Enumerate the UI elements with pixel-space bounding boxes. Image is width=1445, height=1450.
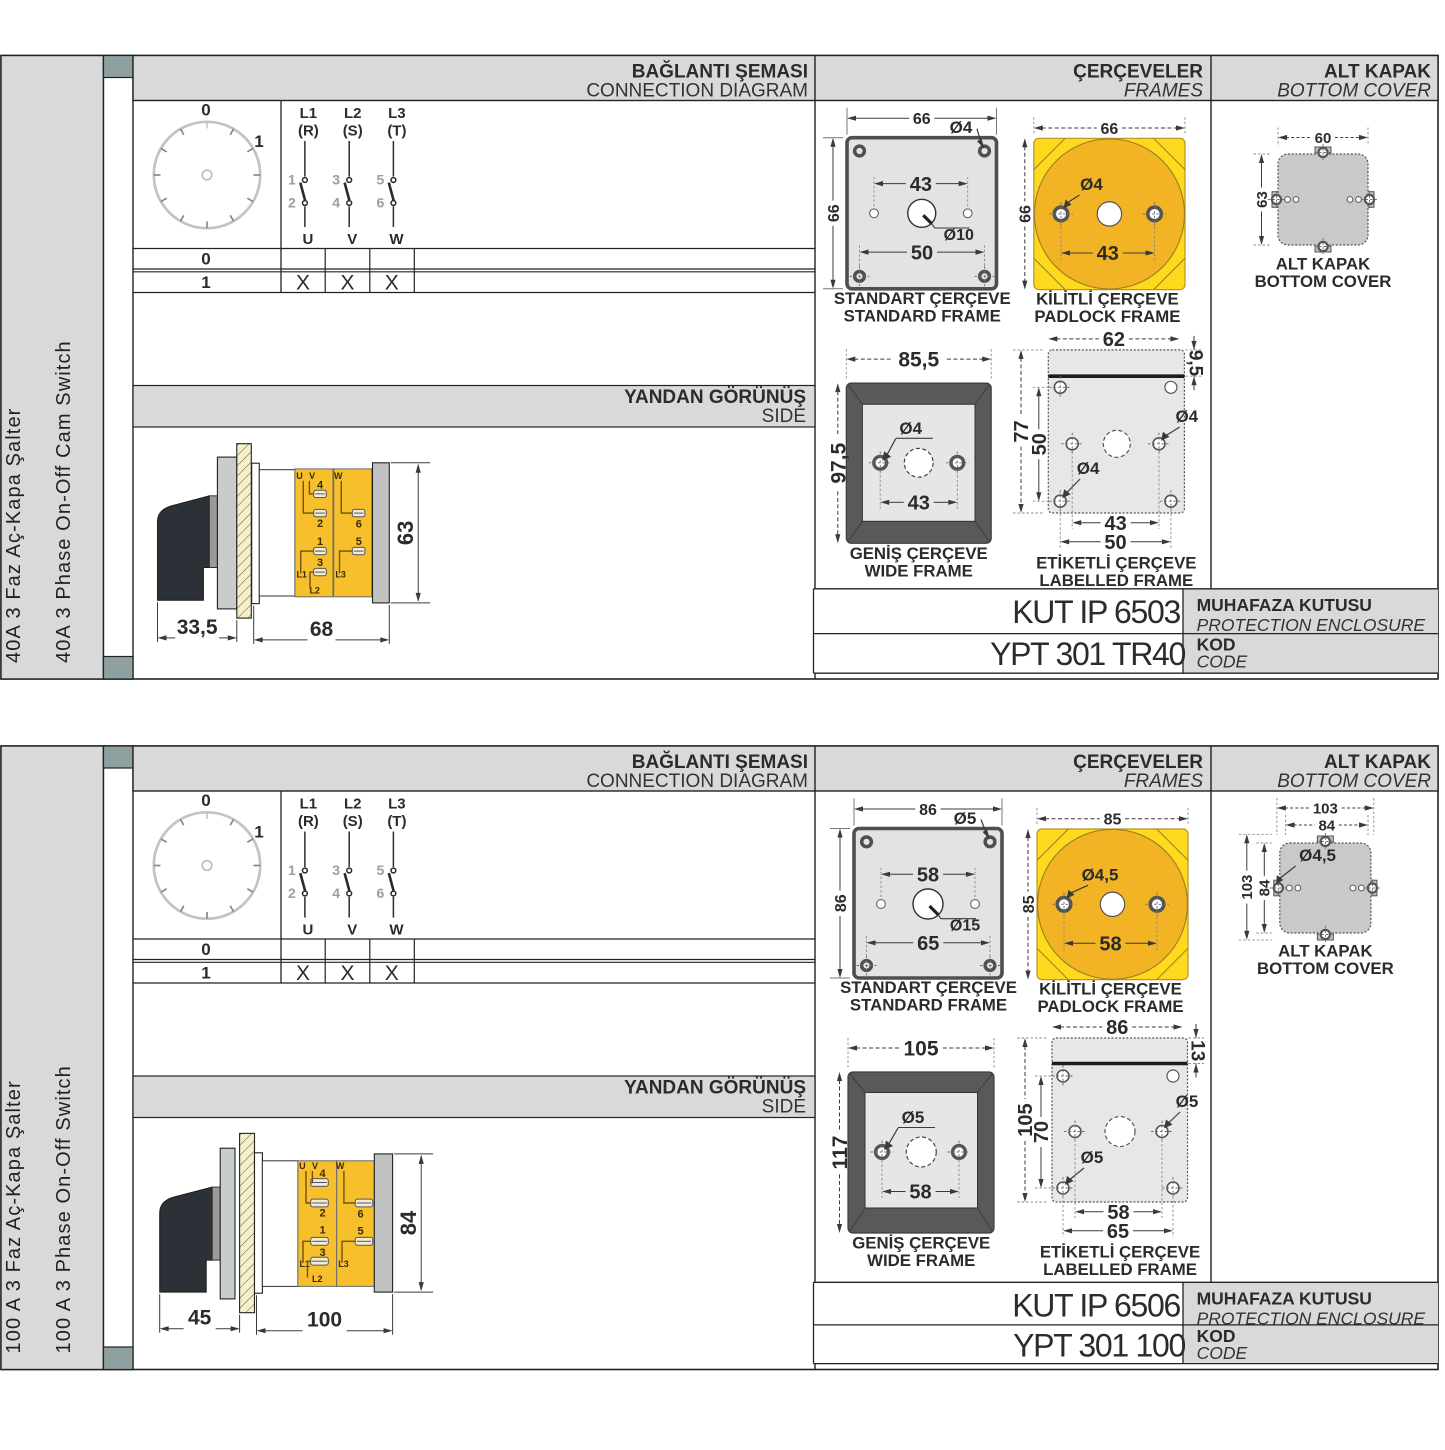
svg-text:85: 85: [1021, 895, 1038, 913]
svg-text:BAĞLANTI ŞEMASI: BAĞLANTI ŞEMASI: [632, 61, 808, 83]
svg-text:Ø5: Ø5: [1081, 1148, 1104, 1167]
svg-text:84: 84: [1318, 817, 1335, 834]
svg-text:L2: L2: [344, 105, 362, 122]
svg-text:X: X: [385, 272, 399, 295]
svg-text:X: X: [385, 962, 399, 985]
svg-text:L2: L2: [312, 1274, 323, 1284]
svg-text:L3: L3: [335, 570, 346, 580]
svg-text:X: X: [296, 272, 310, 295]
svg-text:SIDE: SIDE: [762, 406, 806, 427]
svg-text:KİLİTLİ ÇERÇEVE: KİLİTLİ ÇERÇEVE: [1039, 980, 1182, 999]
svg-text:X: X: [340, 272, 354, 295]
svg-text:WIDE FRAME: WIDE FRAME: [867, 1251, 975, 1270]
svg-text:KUT IP 6503: KUT IP 6503: [1012, 594, 1180, 630]
svg-text:97,5: 97,5: [827, 442, 850, 483]
svg-text:BOTTOM COVER: BOTTOM COVER: [1277, 81, 1431, 102]
svg-text:105: 105: [903, 1038, 938, 1061]
svg-text:100 A 3 Faz Aç-Kapa Şalter: 100 A 3 Faz Aç-Kapa Şalter: [3, 1080, 25, 1353]
svg-text:SIDE: SIDE: [762, 1097, 806, 1118]
svg-text:PROTECTION ENCLOSURE: PROTECTION ENCLOSURE: [1197, 615, 1426, 635]
svg-text:1: 1: [201, 964, 210, 983]
svg-text:FRAMES: FRAMES: [1124, 81, 1204, 102]
svg-text:V: V: [309, 471, 315, 481]
svg-text:65: 65: [1107, 1221, 1129, 1243]
svg-text:Ø4,5: Ø4,5: [1082, 865, 1119, 884]
svg-text:50: 50: [1104, 532, 1126, 554]
svg-text:84: 84: [1257, 879, 1274, 896]
svg-text:MUHAFAZA KUTUSU: MUHAFAZA KUTUSU: [1197, 1288, 1372, 1308]
svg-text:YANDAN GÖRÜNÜŞ: YANDAN GÖRÜNÜŞ: [624, 1078, 806, 1099]
svg-text:GENİŞ ÇERÇEVE: GENİŞ ÇERÇEVE: [852, 1234, 990, 1253]
svg-text:65: 65: [917, 933, 939, 955]
svg-text:40A 3 Faz Aç-Kapa Şalter: 40A 3 Faz Aç-Kapa Şalter: [3, 408, 25, 663]
svg-text:Ø5: Ø5: [1176, 1092, 1199, 1111]
svg-text:YPT 301 100: YPT 301 100: [1013, 1327, 1185, 1363]
svg-text:0: 0: [201, 791, 210, 810]
svg-text:(S): (S): [343, 813, 363, 830]
svg-text:2: 2: [319, 1208, 325, 1220]
svg-text:V: V: [347, 922, 357, 939]
svg-text:3: 3: [332, 172, 340, 188]
svg-text:Ø5: Ø5: [902, 1108, 925, 1127]
svg-text:X: X: [296, 962, 310, 985]
svg-text:70: 70: [1031, 1121, 1053, 1143]
svg-text:4: 4: [332, 885, 340, 901]
svg-text:60: 60: [1315, 130, 1332, 147]
svg-text:103: 103: [1239, 875, 1256, 900]
svg-text:9,5: 9,5: [1184, 350, 1205, 377]
svg-text:4: 4: [317, 480, 324, 492]
svg-text:(R): (R): [298, 813, 319, 830]
svg-text:13: 13: [1186, 1040, 1207, 1061]
svg-text:86: 86: [919, 802, 937, 819]
svg-text:Ø15: Ø15: [950, 918, 980, 935]
svg-text:68: 68: [310, 618, 334, 641]
svg-text:40A 3 Phase On-Off Cam Switch: 40A 3 Phase On-Off Cam Switch: [53, 340, 75, 663]
svg-text:YANDAN GÖRÜNÜŞ: YANDAN GÖRÜNÜŞ: [624, 387, 806, 408]
svg-text:(T): (T): [387, 123, 406, 140]
svg-text:33,5: 33,5: [177, 616, 218, 639]
svg-text:3: 3: [332, 862, 340, 878]
svg-text:ETİKETLİ ÇERÇEVE: ETİKETLİ ÇERÇEVE: [1040, 1243, 1200, 1262]
svg-text:L2: L2: [344, 796, 362, 813]
svg-text:58: 58: [917, 865, 939, 887]
svg-text:43: 43: [908, 493, 930, 515]
svg-text:Ø4: Ø4: [1175, 407, 1198, 426]
svg-text:3: 3: [319, 1247, 325, 1259]
svg-text:84: 84: [396, 1210, 421, 1235]
svg-text:Ø4: Ø4: [950, 118, 973, 137]
svg-text:ALT KAPAK: ALT KAPAK: [1278, 942, 1372, 961]
svg-text:PADLOCK FRAME: PADLOCK FRAME: [1037, 997, 1183, 1016]
svg-text:1: 1: [319, 1224, 325, 1236]
svg-text:3: 3: [317, 557, 323, 569]
svg-text:(R): (R): [298, 123, 319, 140]
svg-text:43: 43: [1097, 243, 1119, 265]
svg-text:ÇERÇEVELER: ÇERÇEVELER: [1073, 752, 1203, 773]
svg-text:85,5: 85,5: [898, 349, 939, 372]
svg-text:L3: L3: [338, 1259, 349, 1269]
svg-text:CONNECTION DIAGRAM: CONNECTION DIAGRAM: [586, 81, 808, 102]
svg-text:5: 5: [356, 536, 362, 548]
svg-text:58: 58: [1099, 934, 1121, 956]
svg-text:6: 6: [377, 885, 385, 901]
svg-text:100 A 3 Phase On-Off Switch: 100 A 3 Phase On-Off Switch: [53, 1065, 75, 1353]
svg-text:86: 86: [1106, 1017, 1128, 1039]
svg-text:63: 63: [1254, 191, 1271, 208]
svg-text:1: 1: [254, 823, 263, 842]
svg-text:L3: L3: [388, 796, 406, 813]
svg-text:ALT KAPAK: ALT KAPAK: [1324, 752, 1431, 773]
svg-text:U: U: [302, 231, 313, 248]
svg-text:BOTTOM COVER: BOTTOM COVER: [1257, 959, 1394, 978]
svg-text:X: X: [340, 962, 354, 985]
svg-text:CODE: CODE: [1197, 1343, 1248, 1363]
svg-text:L1: L1: [296, 570, 307, 580]
svg-text:100: 100: [307, 1309, 342, 1332]
svg-text:V: V: [312, 1161, 318, 1171]
svg-text:STANDARD FRAME: STANDARD FRAME: [844, 306, 1001, 325]
svg-text:ÇERÇEVELER: ÇERÇEVELER: [1073, 62, 1203, 83]
svg-text:L2: L2: [309, 586, 320, 596]
svg-text:GENİŞ ÇERÇEVE: GENİŞ ÇERÇEVE: [850, 544, 988, 563]
svg-text:85: 85: [1104, 811, 1122, 828]
svg-text:W: W: [334, 471, 343, 481]
svg-text:45: 45: [188, 1307, 212, 1330]
svg-text:50: 50: [1029, 433, 1051, 455]
svg-text:W: W: [389, 231, 404, 248]
svg-text:V: V: [347, 231, 357, 248]
svg-text:1: 1: [201, 273, 210, 292]
svg-text:6: 6: [356, 519, 362, 531]
svg-text:L3: L3: [388, 105, 406, 122]
svg-text:BOTTOM COVER: BOTTOM COVER: [1277, 771, 1431, 792]
svg-text:BAĞLANTI ŞEMASI: BAĞLANTI ŞEMASI: [632, 751, 808, 773]
svg-text:0: 0: [201, 940, 210, 959]
svg-text:WIDE FRAME: WIDE FRAME: [865, 561, 973, 580]
svg-text:1: 1: [317, 536, 323, 548]
svg-text:Ø4: Ø4: [899, 419, 922, 438]
svg-text:CODE: CODE: [1197, 652, 1248, 672]
svg-text:ALT KAPAK: ALT KAPAK: [1276, 255, 1370, 274]
svg-text:58: 58: [909, 1182, 931, 1204]
svg-text:L1: L1: [300, 105, 318, 122]
svg-text:117: 117: [829, 1136, 852, 1170]
svg-text:LABELLED FRAME: LABELLED FRAME: [1039, 571, 1193, 590]
svg-text:0: 0: [201, 101, 210, 120]
svg-text:STANDART ÇERÇEVE: STANDART ÇERÇEVE: [834, 289, 1011, 308]
svg-text:Ø10: Ø10: [944, 227, 974, 244]
svg-text:5: 5: [377, 862, 385, 878]
svg-text:W: W: [389, 922, 404, 939]
svg-text:W: W: [336, 1161, 345, 1171]
svg-text:MUHAFAZA KUTUSU: MUHAFAZA KUTUSU: [1197, 595, 1372, 615]
svg-text:0: 0: [201, 250, 210, 269]
svg-text:U: U: [299, 1161, 306, 1171]
svg-text:66: 66: [1101, 121, 1119, 138]
svg-text:4: 4: [319, 1168, 326, 1180]
svg-text:Ø5: Ø5: [954, 809, 977, 828]
svg-text:66: 66: [913, 111, 931, 128]
svg-text:FRAMES: FRAMES: [1124, 771, 1204, 792]
svg-text:STANDART ÇERÇEVE: STANDART ÇERÇEVE: [840, 978, 1017, 997]
svg-text:Ø4,5: Ø4,5: [1299, 846, 1336, 865]
svg-text:L1: L1: [300, 796, 318, 813]
svg-text:STANDARD FRAME: STANDARD FRAME: [850, 996, 1007, 1015]
svg-text:2: 2: [288, 195, 296, 211]
svg-text:Ø4: Ø4: [1077, 459, 1100, 478]
svg-text:6: 6: [358, 1209, 364, 1221]
svg-text:5: 5: [377, 172, 385, 188]
svg-text:ETİKETLİ ÇERÇEVE: ETİKETLİ ÇERÇEVE: [1036, 554, 1196, 573]
svg-text:Ø4: Ø4: [1080, 175, 1103, 194]
svg-text:86: 86: [833, 894, 850, 912]
svg-text:LABELLED FRAME: LABELLED FRAME: [1043, 1260, 1197, 1279]
svg-text:(S): (S): [343, 123, 363, 140]
svg-text:KİLİTLİ ÇERÇEVE: KİLİTLİ ÇERÇEVE: [1036, 290, 1179, 309]
svg-text:CONNECTION DIAGRAM: CONNECTION DIAGRAM: [586, 771, 808, 792]
svg-text:63: 63: [393, 521, 418, 545]
svg-text:1: 1: [254, 132, 263, 151]
svg-text:YPT 301 TR40: YPT 301 TR40: [990, 636, 1185, 672]
svg-text:66: 66: [1018, 205, 1035, 223]
svg-text:U: U: [296, 471, 303, 481]
svg-text:ALT KAPAK: ALT KAPAK: [1324, 62, 1431, 83]
svg-text:103: 103: [1313, 800, 1338, 817]
svg-text:2: 2: [317, 518, 323, 530]
svg-text:U: U: [302, 922, 313, 939]
svg-text:BOTTOM COVER: BOTTOM COVER: [1255, 272, 1392, 291]
svg-text:4: 4: [332, 195, 340, 211]
svg-text:1: 1: [288, 172, 296, 188]
svg-text:6: 6: [377, 195, 385, 211]
svg-text:5: 5: [358, 1225, 364, 1237]
svg-text:66: 66: [826, 204, 843, 222]
svg-text:KUT IP 6506: KUT IP 6506: [1012, 1287, 1180, 1323]
svg-text:62: 62: [1103, 329, 1125, 351]
svg-text:(T): (T): [387, 813, 406, 830]
svg-text:2: 2: [288, 885, 296, 901]
svg-text:1: 1: [288, 862, 296, 878]
svg-text:43: 43: [910, 174, 932, 196]
svg-text:PADLOCK FRAME: PADLOCK FRAME: [1034, 307, 1180, 326]
svg-text:50: 50: [911, 242, 933, 264]
